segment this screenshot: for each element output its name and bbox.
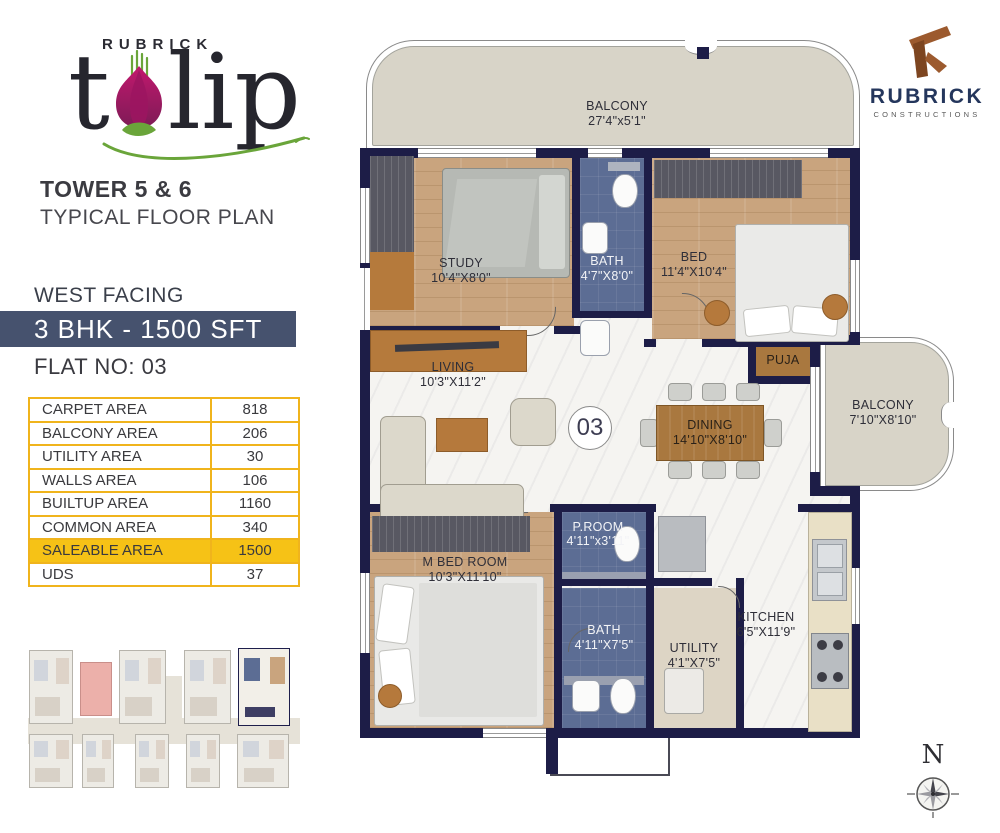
wall [798,504,860,512]
table-row: UDS37 [30,562,298,586]
pillow [375,583,415,645]
pillow [743,305,792,338]
room-name: BATH [590,254,624,269]
unit-number-badge: 03 [568,406,612,450]
kitchen-counter [808,512,852,732]
room-size: 10'4"X8'0" [431,271,491,286]
m-bed-wardrobe [372,516,530,552]
floor-plan: BALCONY 27'4"x5'1" BALCONY 7'10"X8'10" [358,28,973,788]
row-label: UTILITY AREA [30,446,212,468]
row-label: UDS [30,564,212,586]
logo-letters-lip: lip [168,40,301,144]
dining-chair [702,383,726,401]
key-plan-stair-core [80,662,112,716]
dining-chair [668,461,692,479]
study-desk [370,252,414,310]
dining-chair [736,383,760,401]
table-row: COMMON AREA340 [30,515,298,539]
tower-title: TOWER 5 & 6 [40,176,192,203]
room-size: 6'5"X11'9" [737,625,796,640]
row-value: 30 [212,448,298,465]
bedside-stool [822,294,848,320]
wall [546,728,558,774]
project-logo: RUBRICK t lip [30,14,300,174]
study-wardrobe [370,156,414,252]
facing-label: WEST FACING [34,284,184,308]
study-bed-blanket [445,179,537,267]
room-size: 4'1"X7'5" [668,656,721,671]
room-size: 27'4"x5'1" [588,114,646,129]
key-plan-unit [186,734,220,788]
row-value: 1500 [212,542,298,559]
m-bed-blanket [419,583,537,717]
row-value: 1160 [212,495,298,512]
room-name: BATH [587,623,621,638]
room-name: BALCONY [852,398,914,413]
bed-wardrobe [654,160,802,198]
wall [654,578,712,586]
room-size: 4'11"X7'5" [575,638,634,653]
p-room-ledge [562,572,646,579]
row-label: BUILTUP AREA [30,493,212,515]
toilet-tank [608,162,640,171]
row-value: 340 [212,519,298,536]
compass-rose-icon [903,768,963,820]
room-name: STUDY [439,256,483,271]
balcony-door-window [810,367,820,472]
dining-chair [736,461,760,479]
bedside-stool [378,684,402,708]
room-name: PUJA [766,353,799,368]
logo-letter-t: t [68,40,110,144]
sink-icon [572,680,600,712]
key-plan-unit [184,650,231,724]
wall [644,339,656,347]
room-name: KITCHEN [738,610,795,625]
dining-table: DINING 14'10"X8'10" [656,405,764,461]
toilet-icon [610,678,636,714]
room-size: 4'7"X8'0" [581,269,634,284]
key-plan-unit [135,734,169,788]
room-name: M BED ROOM [423,555,508,570]
compass-north-label: N [903,742,963,768]
wall [360,728,860,738]
room-size: 11'4"X10'4" [661,265,727,280]
window [710,148,828,158]
window [483,728,547,738]
key-plan-unit-highlighted [238,648,290,726]
key-plan-unit [119,650,166,724]
row-label: SALEABLE AREA [30,540,212,562]
row-value: 206 [212,425,298,442]
row-label: COMMON AREA [30,517,212,539]
tulip-flower-icon [108,48,172,144]
master-bed [374,576,544,726]
wall [644,148,652,318]
entry-door-opening [360,268,370,330]
wall [554,578,654,586]
balcony-arch-post [697,47,709,59]
room-size: 7'10"X8'10" [850,413,917,428]
double-bed [735,224,849,342]
bhk-band: 3 BHK - 1500 SFT [0,311,296,347]
balcony-top-floor [372,46,854,146]
room-name: UTILITY [670,641,719,656]
logo-swash-icon [100,132,310,168]
wall [550,504,656,512]
kitchen-sink-icon [812,539,847,601]
window [588,148,622,158]
compass: N [903,742,963,822]
room-name: DINING [687,418,733,433]
room-size: 10'3"X11'10" [428,570,501,585]
coffee-table [436,418,488,452]
table-row: CARPET AREA818 [30,399,298,421]
dining-chair [702,461,726,479]
washing-machine [664,668,704,714]
wall [572,148,580,318]
key-plan-unit [237,734,289,788]
armchair [510,398,556,446]
study-bed-pillow [539,175,565,269]
project-logo-wordmark: t lip [68,40,301,144]
flat-number-label: FLAT NO: 03 [34,354,167,380]
toilet-icon [612,174,638,208]
dining-chair [668,383,692,401]
row-label: WALLS AREA [30,470,212,492]
table-row-saleable-highlight: SALEABLE AREA1500 [30,538,298,562]
bedside-stool [704,300,730,326]
balcony-right-notch [941,402,956,428]
key-plan [24,636,314,806]
dining-chair [764,419,782,447]
window [850,260,860,332]
sink-icon [582,222,608,254]
room-size: 14'10"X8'10" [673,433,747,448]
room-size: 4'11"x3'11" [566,534,629,549]
row-label: BALCONY AREA [30,423,212,445]
key-plan-unit [29,650,73,724]
wash-basin-icon [580,320,610,356]
row-value: 37 [212,566,298,583]
table-row: WALLS AREA106 [30,468,298,492]
room-name: LIVING [432,360,475,375]
window [418,148,536,158]
wall [572,311,652,318]
wall [646,504,654,738]
key-plan-unit [29,734,73,788]
row-value: 818 [212,401,298,418]
window [360,573,370,653]
wall [554,326,580,334]
room-name: BALCONY [586,99,648,114]
stove-icon [811,633,849,689]
table-row: BUILTUP AREA1160 [30,491,298,515]
duct-shaft [550,738,670,776]
room-name: P.ROOM [573,520,624,535]
balcony-right: BALCONY 7'10"X8'10" [820,337,954,491]
area-table: CARPET AREA818 BALCONY AREA206 UTILITY A… [28,397,300,587]
balcony-top: BALCONY 27'4"x5'1" [366,40,860,152]
key-plan-unit [82,734,114,788]
plan-type-title: TYPICAL FLOOR PLAN [40,206,275,230]
row-label: CARPET AREA [30,399,212,421]
wall [554,504,562,738]
room-size: 10'3"X11'2" [420,375,486,390]
row-value: 106 [212,472,298,489]
fridge [658,516,706,572]
table-row: UTILITY AREA30 [30,444,298,468]
room-name: BED [681,250,708,265]
window [360,188,370,263]
tv-icon [395,341,499,352]
table-row: BALCONY AREA206 [30,421,298,445]
